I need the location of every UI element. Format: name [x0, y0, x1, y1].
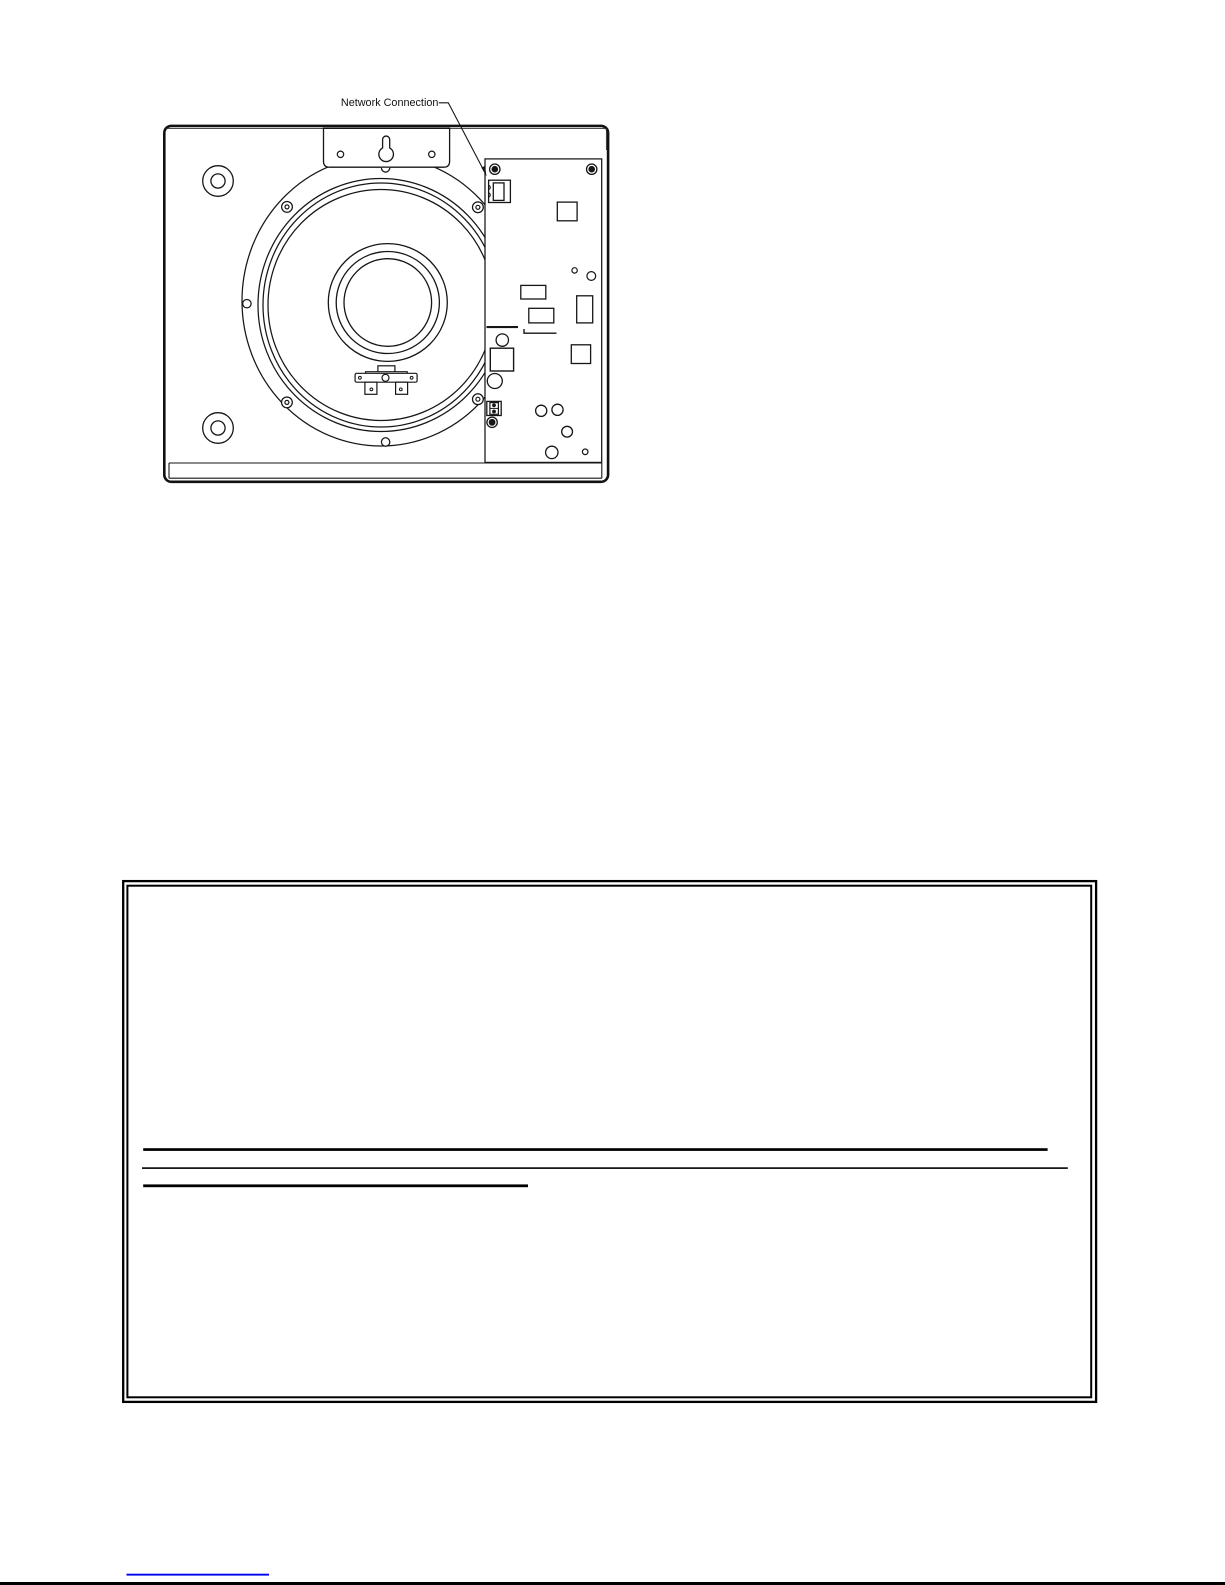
- svg-text:Network Connection: Network Connection: [341, 97, 439, 109]
